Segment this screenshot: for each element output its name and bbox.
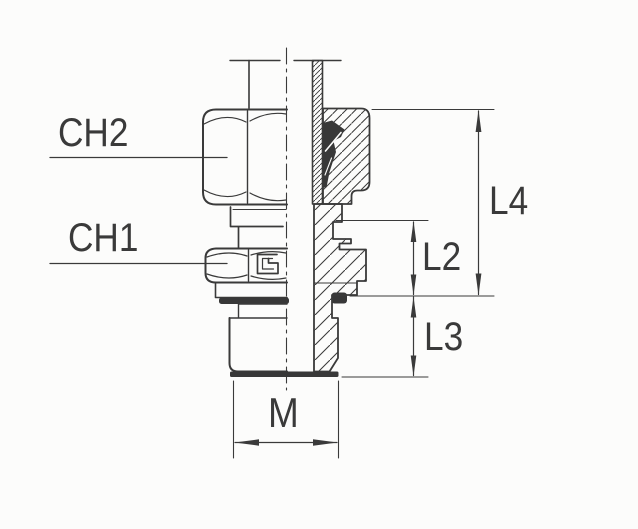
drawing-canvas: CH2 CH1 L4 L2 L3 M (0, 0, 638, 529)
body-neck-left (231, 207, 284, 248)
callout-ch1-label: CH1 (68, 218, 138, 258)
tube-wall-section (313, 61, 323, 205)
washer-left (216, 283, 288, 298)
nut-ch2-outline (203, 110, 287, 210)
dimension-m-label: M (268, 392, 299, 434)
body-section-right (314, 204, 366, 372)
dimension-l2-label: L2 (422, 237, 461, 277)
body-hex-ch1-outline (206, 249, 288, 283)
thread-stud-left (230, 304, 288, 372)
thread-end-band (230, 372, 339, 378)
fitting-section-drawing (0, 0, 638, 529)
callout-ch2-label: CH2 (58, 113, 128, 153)
dimension-l4-label: L4 (489, 181, 528, 221)
stamp-logo (258, 255, 279, 274)
dimension-l3-label: L3 (424, 317, 463, 357)
seal-band-left (219, 298, 289, 305)
